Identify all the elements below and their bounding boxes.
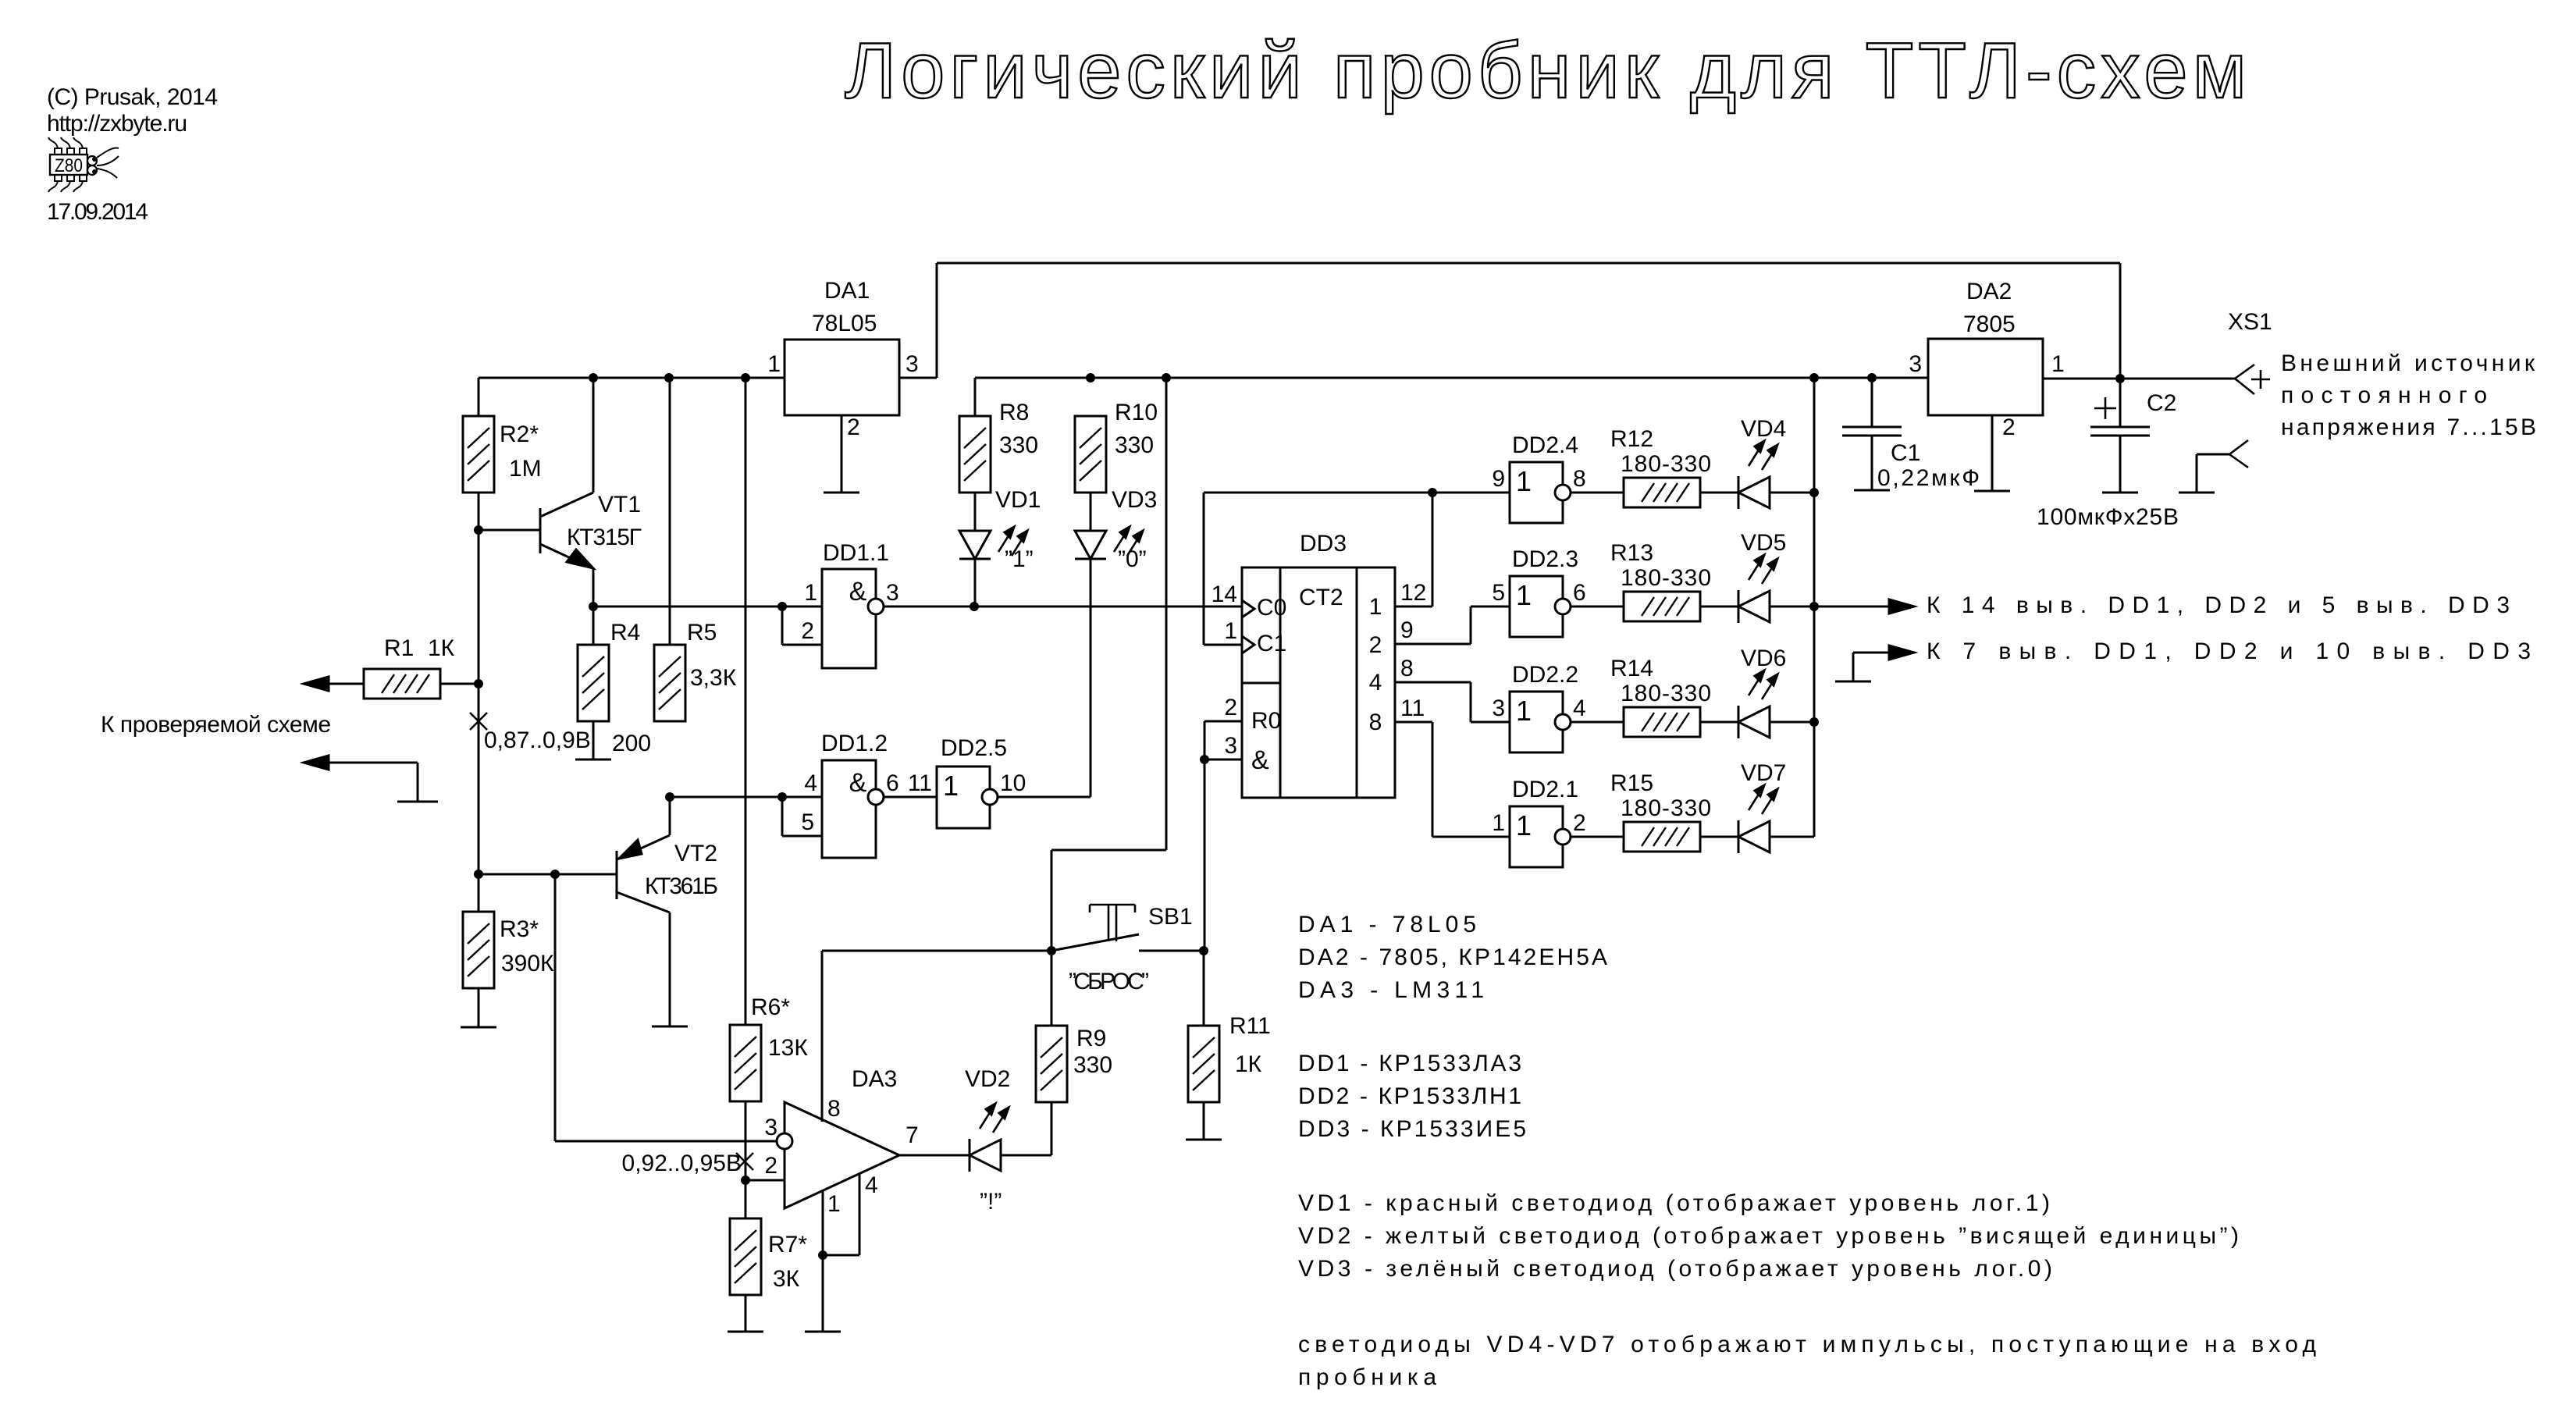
svg-text:DA2 - 7805, КР142ЕН5А: DA2 - 7805, КР142ЕН5А: [1298, 944, 1607, 970]
svg-text:постоянного: постоянного: [2281, 382, 2487, 408]
svg-text:DD3 - КР1533ИЕ5: DD3 - КР1533ИЕ5: [1298, 1116, 1526, 1142]
svg-text:DD2.2: DD2.2: [1512, 662, 1578, 688]
svg-text:К проверяемой схеме: К проверяемой схеме: [101, 712, 331, 738]
svg-text:VD3: VD3: [1112, 487, 1157, 513]
svg-text:330: 330: [999, 432, 1038, 458]
svg-text:3: 3: [1909, 351, 1922, 377]
svg-text:DD2.3: DD2.3: [1512, 546, 1578, 572]
svg-text:VD1: VD1: [995, 487, 1041, 513]
svg-text:R6*: R6*: [751, 994, 790, 1020]
svg-text:DD1 - КР1533ЛА3: DD1 - КР1533ЛА3: [1298, 1051, 1521, 1076]
svg-text:4: 4: [804, 770, 817, 796]
svg-text:1: 1: [1492, 810, 1505, 836]
svg-text:3: 3: [1492, 695, 1505, 721]
svg-text:1: 1: [1516, 695, 1532, 727]
svg-text:1К: 1К: [428, 635, 455, 661]
svg-text:5: 5: [801, 809, 814, 835]
svg-text:DD2.4: DD2.4: [1512, 432, 1578, 458]
svg-text:0,92..0,95В: 0,92..0,95В: [622, 1151, 742, 1176]
svg-text:180-330: 180-330: [1621, 681, 1711, 706]
svg-text:2: 2: [801, 618, 814, 644]
svg-text:R7*: R7*: [768, 1232, 807, 1257]
svg-text:VD1 - красный светодиод (отобр: VD1 - красный светодиод (отображает уров…: [1298, 1190, 2050, 1216]
svg-text:R11: R11: [1229, 1013, 1271, 1039]
svg-text:11: 11: [1400, 695, 1425, 721]
svg-text:C2: C2: [2147, 390, 2176, 416]
svg-text:DA1: DA1: [824, 278, 870, 304]
svg-text:0,22мкФ: 0,22мкФ: [1877, 465, 1980, 491]
svg-text:КТ361Б: КТ361Б: [645, 873, 718, 899]
svg-text:R1: R1: [384, 635, 414, 661]
svg-text:R13: R13: [1610, 540, 1653, 566]
svg-text:3: 3: [886, 580, 899, 606]
svg-text:http://zxbyte.ru: http://zxbyte.ru: [47, 111, 187, 137]
svg-text:4: 4: [865, 1172, 878, 1198]
svg-text:1: 1: [827, 1191, 841, 1217]
svg-text:светодиоды VD4-VD7 отображают: светодиоды VD4-VD7 отображают импульсы, …: [1298, 1332, 2316, 1357]
svg-text:4: 4: [1369, 670, 1382, 695]
svg-text:9: 9: [1400, 617, 1414, 643]
svg-text:2: 2: [1573, 810, 1586, 836]
svg-text:&: &: [1251, 745, 1269, 775]
svg-text:330: 330: [1073, 1052, 1112, 1078]
svg-text:DD1.2: DD1.2: [821, 731, 888, 756]
svg-text:3: 3: [1224, 733, 1237, 759]
svg-text:КТ315Г: КТ315Г: [567, 525, 642, 550]
svg-text:DD2.5: DD2.5: [941, 735, 1007, 761]
svg-text:390К: 390К: [501, 951, 554, 976]
svg-text:1: 1: [804, 580, 817, 606]
svg-text:10: 10: [1000, 770, 1026, 796]
svg-text:1: 1: [1369, 594, 1382, 620]
svg-text:1: 1: [1516, 809, 1532, 841]
svg-text:2: 2: [1224, 695, 1237, 720]
svg-text:&: &: [849, 577, 867, 606]
svg-text:XS1: XS1: [2228, 309, 2272, 335]
svg-text:8: 8: [827, 1096, 841, 1122]
svg-text:1М: 1М: [509, 456, 542, 482]
svg-text:DA2: DA2: [1966, 279, 2012, 304]
svg-text:R4: R4: [610, 620, 640, 646]
svg-text:VD2 - желтый светодиод (отобра: VD2 - желтый светодиод (отображает урове…: [1298, 1223, 2239, 1249]
svg-text:VD3 - зелёный светодиод (отобр: VD3 - зелёный светодиод (отображает уров…: [1298, 1256, 2052, 1282]
svg-text:180-330: 180-330: [1621, 451, 1711, 477]
svg-text:11: 11: [908, 770, 932, 796]
svg-text:2: 2: [764, 1153, 777, 1179]
svg-text:R3*: R3*: [500, 916, 539, 942]
svg-text:Внешний источник: Внешний источник: [2281, 350, 2535, 376]
svg-text:5: 5: [1492, 580, 1505, 606]
svg-text:”1”: ”1”: [1005, 546, 1034, 572]
svg-text:DD3: DD3: [1300, 531, 1347, 557]
svg-text:13К: 13К: [768, 1035, 808, 1061]
svg-text:R2*: R2*: [500, 421, 539, 447]
svg-text:напряжения 7...15В: напряжения 7...15В: [2281, 414, 2536, 440]
svg-text:DD2 - КР1533ЛН1: DD2 - КР1533ЛН1: [1298, 1083, 1521, 1109]
svg-text:R10: R10: [1115, 400, 1158, 425]
svg-text:17.09.2014: 17.09.2014: [47, 199, 148, 225]
svg-text:14: 14: [1212, 582, 1237, 607]
svg-text:R8: R8: [999, 400, 1029, 425]
svg-text:VT1: VT1: [598, 492, 641, 518]
svg-text:1: 1: [1516, 579, 1532, 611]
svg-text:DA3 - LM311: DA3 - LM311: [1298, 977, 1484, 1003]
svg-text:1: 1: [943, 770, 959, 802]
svg-text:Логический пробник для ТТЛ-схе: Логический пробник для ТТЛ-схем: [845, 27, 2247, 115]
svg-text:2: 2: [1369, 632, 1382, 658]
svg-text:VD5: VD5: [1741, 530, 1786, 556]
svg-text:78L05: 78L05: [812, 311, 877, 336]
svg-text:DA3: DA3: [852, 1066, 897, 1092]
svg-text:180-330: 180-330: [1621, 795, 1711, 821]
svg-text:VD7: VD7: [1741, 760, 1786, 786]
svg-text:VD4: VD4: [1741, 416, 1786, 442]
svg-text:R0: R0: [1251, 708, 1281, 734]
svg-text:1: 1: [2051, 351, 2065, 377]
svg-text:100мкФх25В: 100мкФх25В: [2037, 504, 2179, 530]
svg-text:Z80: Z80: [55, 155, 83, 176]
svg-text:3К: 3К: [773, 1266, 800, 1292]
svg-text:R15: R15: [1610, 770, 1653, 796]
svg-text:8: 8: [1400, 656, 1414, 681]
svg-text:К 14 выв. DD1, DD2 и 5 выв. DD: К 14 выв. DD1, DD2 и 5 выв. DD3: [1927, 592, 2510, 618]
svg-text:DD2.1: DD2.1: [1512, 777, 1578, 802]
svg-text:12: 12: [1400, 580, 1426, 606]
svg-text:CT2: CT2: [1299, 585, 1343, 610]
svg-text:2: 2: [847, 414, 860, 440]
svg-text:180-330: 180-330: [1621, 565, 1711, 591]
svg-text:3: 3: [764, 1115, 777, 1140]
svg-text:7: 7: [906, 1122, 919, 1148]
svg-text:C1: C1: [1257, 631, 1286, 656]
svg-text:6: 6: [1573, 580, 1586, 606]
svg-text:1: 1: [1224, 618, 1237, 644]
svg-text:(C) Prusak, 2014: (C) Prusak, 2014: [47, 84, 218, 110]
svg-text:SB1: SB1: [1148, 904, 1193, 930]
svg-text:3,3К: 3,3К: [690, 665, 737, 691]
svg-text:C0: C0: [1257, 595, 1286, 621]
svg-text:VD2: VD2: [965, 1066, 1010, 1092]
svg-text:1: 1: [1516, 465, 1532, 497]
svg-text:VD6: VD6: [1741, 646, 1786, 671]
svg-text:330: 330: [1115, 432, 1154, 458]
svg-text:6: 6: [886, 770, 899, 796]
svg-text:3: 3: [906, 351, 919, 377]
svg-text:R12: R12: [1610, 426, 1653, 452]
svg-text:0,87..0,9В: 0,87..0,9В: [484, 727, 591, 753]
svg-text:”!”: ”!”: [980, 1189, 1002, 1215]
svg-text:4: 4: [1573, 695, 1586, 721]
svg-text:VT2: VT2: [674, 841, 717, 866]
svg-text:2: 2: [2002, 414, 2016, 440]
svg-text:8: 8: [1369, 710, 1382, 735]
svg-text:пробника: пробника: [1298, 1364, 1436, 1390]
svg-text:C1: C1: [1891, 440, 1920, 466]
svg-text:R14: R14: [1610, 656, 1653, 681]
svg-text:8: 8: [1573, 466, 1586, 492]
svg-text:&: &: [849, 768, 867, 798]
svg-text:DA1 - 78L05: DA1 - 78L05: [1298, 912, 1476, 937]
svg-text:1: 1: [767, 351, 781, 377]
svg-text:DD1.1: DD1.1: [823, 540, 889, 566]
svg-text:R9: R9: [1076, 1026, 1106, 1051]
svg-text:”0”: ”0”: [1118, 546, 1147, 572]
svg-text:1К: 1К: [1235, 1051, 1262, 1077]
svg-text:”СБРОС”: ”СБРОС”: [1069, 969, 1149, 994]
svg-text:200: 200: [612, 731, 651, 756]
svg-text:К 7 выв. DD1, DD2 и 10 выв. DD: К 7 выв. DD1, DD2 и 10 выв. DD3: [1927, 638, 2531, 664]
svg-text:R5: R5: [687, 620, 717, 646]
svg-text:7805: 7805: [1963, 311, 2016, 337]
svg-text:9: 9: [1492, 466, 1505, 492]
